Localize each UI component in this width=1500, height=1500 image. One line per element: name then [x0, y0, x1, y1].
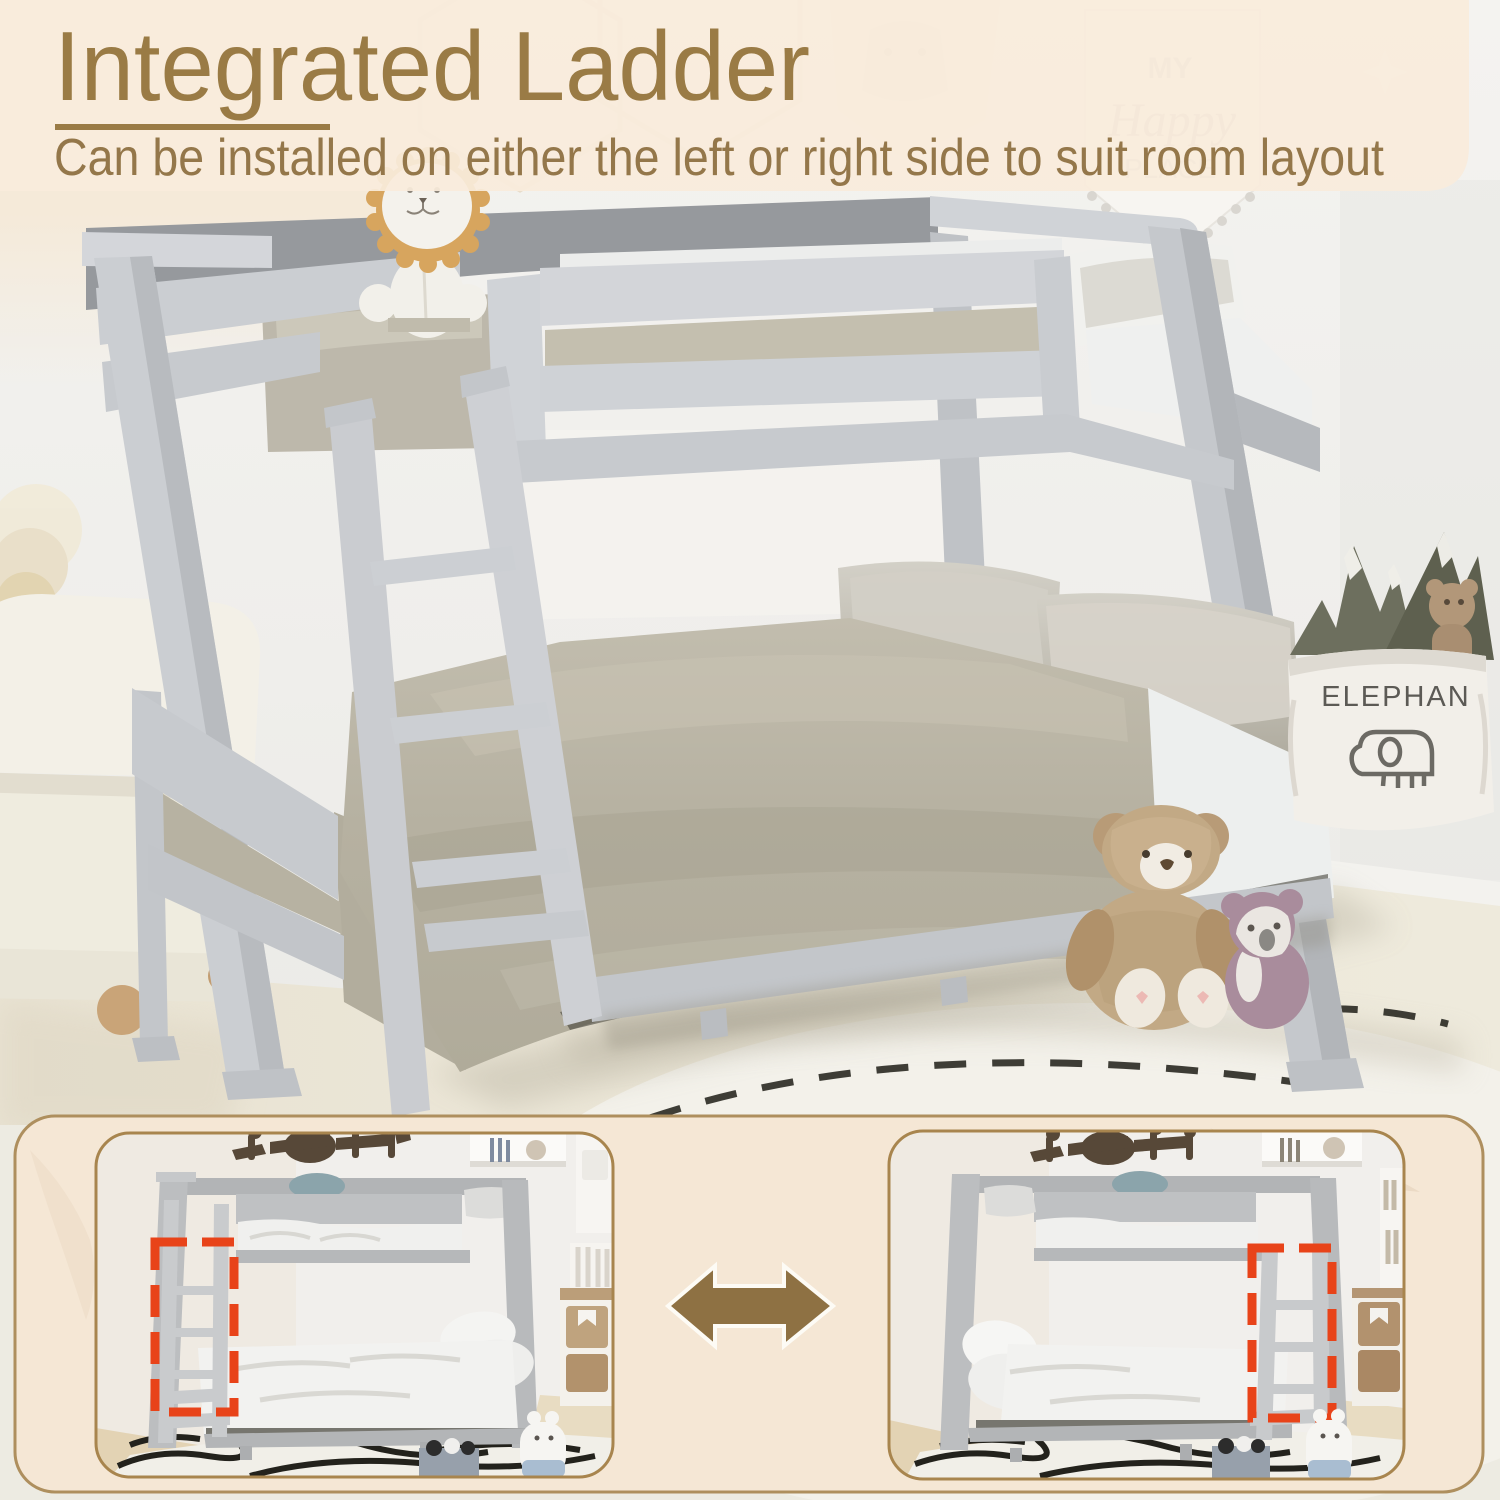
- svg-text:Integrated Ladder: Integrated Ladder: [54, 11, 810, 121]
- svg-text:Can be installed on either the: Can be installed on either the left or r…: [54, 129, 1384, 187]
- svg-text:ELEPHAN: ELEPHAN: [1321, 681, 1470, 713]
